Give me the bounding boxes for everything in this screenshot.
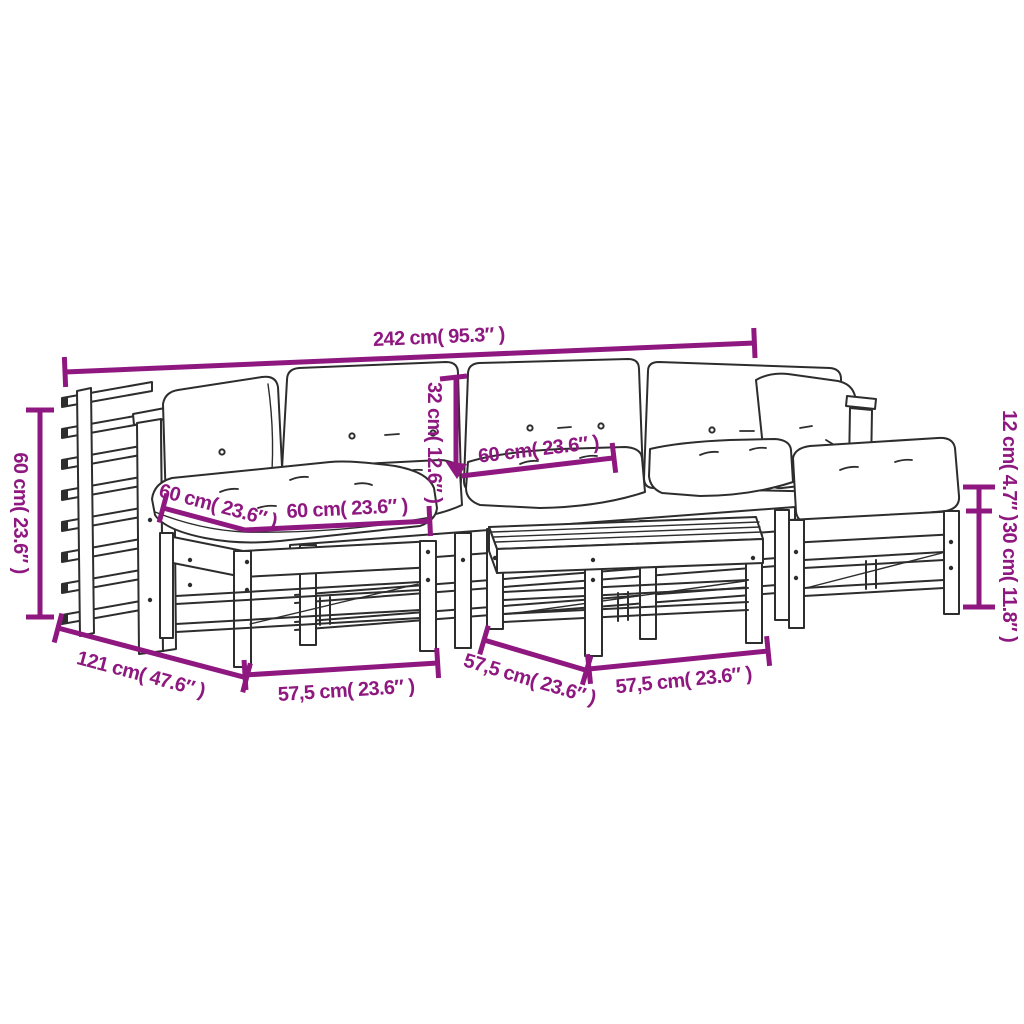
dim-table-depth-label: 57,5 cm( 23.6″ ) [461,650,598,710]
dim-armrest-height-label: 60 cm( 23.6″ ) [9,452,31,573]
dim-total-depth-label: 121 cm( 47.6″ ) [74,647,207,702]
product-dimension-page: 242 cm( 95.3″ ) 60 cm( 23.6″ ) 121 cm( 4… [0,0,1024,1024]
dim-total-width-label: 242 cm( 95.3″ ) [373,323,506,351]
right-ottoman [789,438,959,628]
coffee-table [487,517,763,656]
dim-frame-height-label: 30 cm( 11.8″ ) [998,522,1020,642]
dim-armrest-height: 60 cm( 23.6″ ) [9,410,54,617]
dim-right-heights: 12 cm( 4.7″ ) 30 cm( 11.8″ ) [963,410,1020,642]
seat-cushion [649,439,793,496]
right-ottoman-cushion [793,438,959,523]
dim-left-module-width: 57,5 cm( 23.6″ ) [244,648,440,708]
dim-left-module-width-label: 57,5 cm( 23.6″ ) [277,676,415,706]
dim-table-width: 57,5 cm( 23.6″ ) [587,636,771,701]
dim-table-width-label: 57,5 cm( 23.6″ ) [615,663,753,699]
furniture-dimension-diagram: 242 cm( 95.3″ ) 60 cm( 23.6″ ) 121 cm( 4… [0,0,1024,1024]
sofa-set-line-art [62,359,959,667]
dim-backrest-height-label: 32 cm( 12.6″ ) [423,382,445,503]
dim-cushion-thickness-label: 12 cm( 4.7″ ) [998,410,1020,521]
